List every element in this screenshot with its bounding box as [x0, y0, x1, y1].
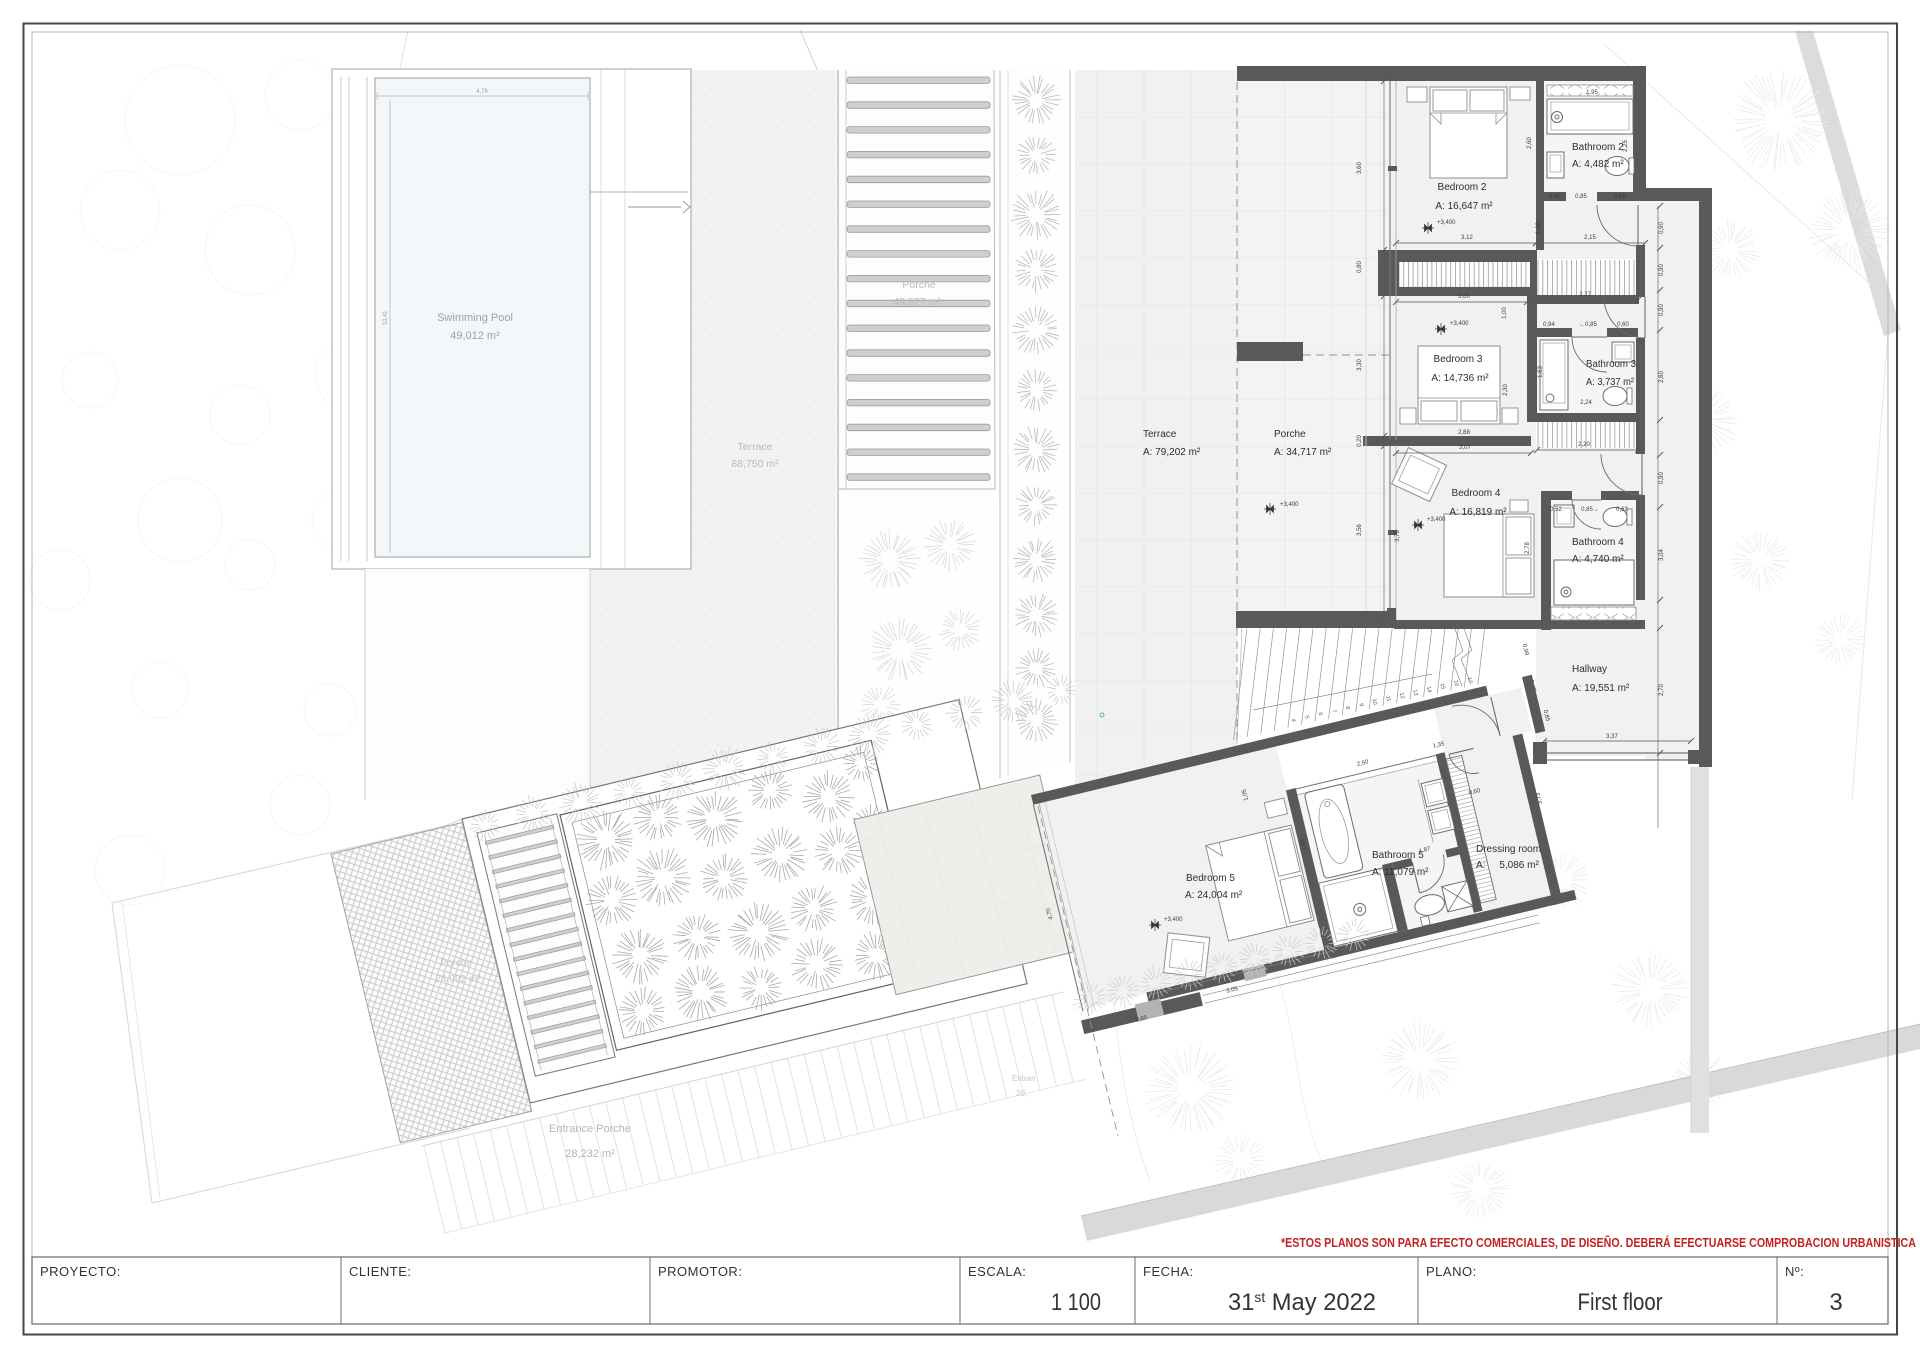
svg-text:+3,400: +3,400	[1437, 220, 1456, 226]
svg-text:1,00: 1,00	[1536, 222, 1542, 234]
svg-text:Nº:: Nº:	[1785, 1264, 1804, 1279]
svg-text:3,37: 3,37	[1606, 734, 1618, 740]
svg-text:+3,400: +3,400	[1164, 917, 1183, 923]
svg-text:A: 16,819 m²: A: 16,819 m²	[1449, 507, 1507, 518]
svg-text:1,63: 1,63	[1538, 366, 1544, 378]
svg-text:2,60: 2,60	[1527, 137, 1533, 149]
svg-text:3,07: 3,07	[1459, 445, 1471, 451]
svg-text:3,12: 3,12	[1461, 235, 1473, 241]
svg-text:Entrance Porche: Entrance Porche	[549, 1123, 631, 1135]
svg-text:3,78: 3,78	[1395, 530, 1401, 542]
svg-text:+3,400: +3,400	[1280, 502, 1299, 508]
svg-text:49,577 m²: 49,577 m²	[893, 296, 941, 308]
svg-text:1,00: 1,00	[1502, 307, 1508, 319]
svg-text:0,60: 0,60	[1617, 322, 1629, 328]
svg-text:A: 3,737 m²: A: 3,737 m²	[1586, 377, 1635, 388]
svg-text:Bathroom 4: Bathroom 4	[1572, 537, 1624, 548]
svg-text:Bedroom 3: Bedroom 3	[1434, 354, 1483, 365]
svg-text:A: 14,736 m²: A: 14,736 m²	[1431, 373, 1489, 384]
svg-text:1 100: 1 100	[1051, 1289, 1101, 1316]
svg-text:2,15: 2,15	[1584, 235, 1596, 241]
svg-text:Bedroom 2: Bedroom 2	[1438, 182, 1487, 193]
svg-text:PROYECTO:: PROYECTO:	[40, 1264, 121, 1279]
svg-text:0,85→: 0,85→	[1581, 507, 1599, 513]
svg-text:0,94: 0,94	[1543, 322, 1555, 328]
svg-text:2,25: 2,25	[1623, 140, 1629, 152]
svg-text:2,24: 2,24	[1580, 400, 1592, 406]
svg-text:2,70: 2,70	[1659, 684, 1665, 696]
svg-text:+3,400: +3,400	[1427, 517, 1446, 523]
svg-text:Terrace: Terrace	[1143, 429, 1177, 440]
svg-text:PLANO:: PLANO:	[1426, 1264, 1477, 1279]
svg-text:3,04: 3,04	[1659, 549, 1665, 561]
svg-text:0,90: 0,90	[1659, 264, 1665, 276]
svg-text:+3,400: +3,400	[1450, 321, 1469, 327]
svg-text:49,012 m²: 49,012 m²	[450, 330, 500, 342]
svg-text:Porche: Porche	[902, 279, 935, 291]
svg-text:3,00: 3,00	[1458, 294, 1470, 300]
svg-text:0,90: 0,90	[1659, 222, 1665, 234]
svg-text:Porche: Porche	[1274, 429, 1306, 440]
svg-text:A: 4,482 m²: A: 4,482 m²	[1572, 159, 1624, 170]
svg-text:0,20: 0,20	[1357, 435, 1363, 447]
svg-text:←0,85: ←0,85	[1579, 322, 1597, 328]
svg-text:0,68: 0,68	[1614, 194, 1626, 200]
svg-text:Entran: Entran	[1012, 1074, 1036, 1083]
svg-text:Swimming Pool: Swimming Pool	[437, 312, 513, 324]
svg-text:0,90: 0,90	[1659, 304, 1665, 316]
svg-text:3: 3	[1829, 1289, 1842, 1316]
svg-text:0,85: 0,85	[1575, 194, 1587, 200]
svg-text:2,78: 2,78	[1525, 542, 1531, 554]
svg-text:2,88: 2,88	[1458, 430, 1470, 436]
svg-text:24,092 m²: 24,092 m²	[435, 974, 481, 985]
svg-text:31st May 2022: 31st May 2022	[1228, 1289, 1376, 1316]
svg-text:Bathroom 3: Bathroom 3	[1586, 359, 1636, 370]
svg-text:3,30: 3,30	[1357, 359, 1363, 371]
svg-text:A: 34,717 m²: A: 34,717 m²	[1274, 447, 1332, 458]
svg-text:Bathroom 2: Bathroom 2	[1572, 142, 1624, 153]
svg-text:2,20: 2,20	[1578, 442, 1590, 448]
svg-text:88,750 m²: 88,750 m²	[731, 458, 779, 470]
svg-text:A: 24,004 m²: A: 24,004 m²	[1185, 890, 1243, 901]
svg-text:A: 4,740 m²: A: 4,740 m²	[1572, 554, 1624, 565]
svg-text:*ESTOS PLANOS SON PARA EFECTO: *ESTOS PLANOS SON PARA EFECTO COMERCIALE…	[1281, 1235, 1916, 1250]
svg-text:3,60: 3,60	[1357, 162, 1363, 174]
svg-text:0,63: 0,63	[1616, 507, 1628, 513]
svg-text:0,80: 0,80	[1357, 261, 1363, 273]
svg-text:Dressing room: Dressing room	[1476, 844, 1541, 855]
svg-text:A: 5,086 m²: A: 5,086 m²	[1476, 860, 1539, 871]
svg-text:Bedroom 4: Bedroom 4	[1452, 488, 1501, 499]
svg-text:2,60: 2,60	[1659, 371, 1665, 383]
svg-text:0,90: 0,90	[1659, 472, 1665, 484]
svg-text:2,27: 2,27	[1579, 292, 1591, 298]
svg-text:A: 11,079 m²: A: 11,079 m²	[1372, 867, 1429, 878]
svg-text:Bathroom 5: Bathroom 5	[1372, 850, 1424, 861]
svg-text:FECHA:: FECHA:	[1143, 1264, 1194, 1279]
svg-text:Porche: Porche	[440, 958, 472, 969]
svg-text:3,56: 3,56	[1357, 524, 1363, 536]
svg-text:Terrace: Terrace	[737, 441, 772, 453]
svg-text:A: 79,202 m²: A: 79,202 m²	[1143, 447, 1201, 458]
svg-text:CLIENTE:: CLIENTE:	[349, 1264, 412, 1279]
svg-text:1,95: 1,95	[1586, 90, 1598, 96]
svg-text:0,42: 0,42	[1549, 194, 1561, 200]
svg-text:ESCALA:: ESCALA:	[968, 1264, 1026, 1279]
svg-text:Hallway: Hallway	[1572, 664, 1607, 675]
svg-text:PROMOTOR:: PROMOTOR:	[658, 1264, 742, 1279]
svg-text:First floor: First floor	[1578, 1289, 1663, 1316]
svg-text:20,: 20,	[1016, 1089, 1027, 1098]
svg-text:A: 19,551 m²: A: 19,551 m²	[1572, 683, 1630, 694]
svg-text:0,52: 0,52	[1550, 507, 1562, 513]
svg-text:10,41: 10,41	[383, 310, 389, 326]
svg-text:2,30: 2,30	[1503, 384, 1509, 396]
svg-text:A: 16,647 m²: A: 16,647 m²	[1435, 201, 1493, 212]
svg-text:4,76: 4,76	[476, 89, 488, 95]
svg-text:Bedroom 5: Bedroom 5	[1186, 873, 1235, 884]
svg-text:28,232 m²: 28,232 m²	[565, 1148, 615, 1160]
